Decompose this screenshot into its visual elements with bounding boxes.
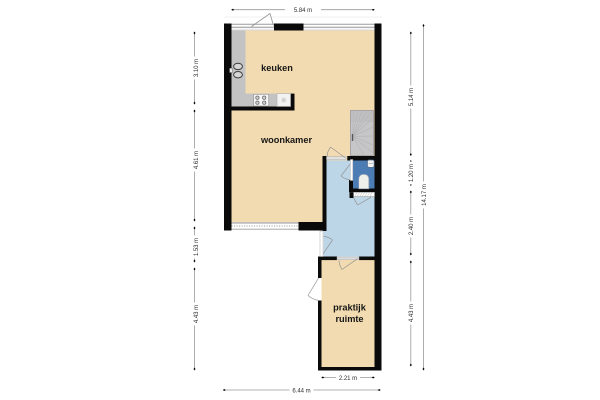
svg-text:4.43 m: 4.43 m <box>409 304 415 322</box>
svg-text:1.53 m: 1.53 m <box>194 238 200 256</box>
svg-text:keuken: keuken <box>261 63 293 73</box>
svg-text:praktijk: praktijk <box>333 303 367 313</box>
svg-text:2.21 m: 2.21 m <box>339 376 357 382</box>
svg-text:woonkamer: woonkamer <box>260 135 312 145</box>
svg-text:4.61 m: 4.61 m <box>194 151 200 169</box>
svg-text:5.14 m: 5.14 m <box>409 88 415 106</box>
svg-text:1.20 m: 1.20 m <box>409 164 415 182</box>
svg-text:3.10 m: 3.10 m <box>194 59 200 77</box>
svg-text:6.44 m: 6.44 m <box>292 388 310 394</box>
svg-text:2.40 m: 2.40 m <box>409 217 415 235</box>
svg-text:14.17 m: 14.17 m <box>422 184 428 206</box>
svg-text:ruimte: ruimte <box>335 314 363 324</box>
svg-text:4.43 m: 4.43 m <box>194 305 200 323</box>
svg-text:5.84 m: 5.84 m <box>294 8 312 14</box>
